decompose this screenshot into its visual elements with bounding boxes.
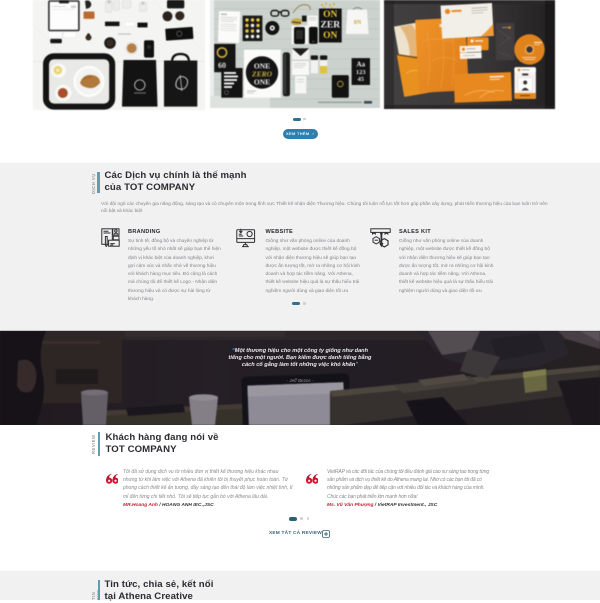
svg-text:ONE: ONE (254, 78, 270, 87)
svg-text:123: 123 (356, 69, 367, 76)
svg-text:ON: ON (323, 31, 337, 41)
svg-text:ON: ON (323, 10, 337, 20)
svg-text:ZER: ZER (321, 21, 341, 31)
svg-text:0N: 0N (354, 20, 362, 26)
svg-text:Aa: Aa (357, 61, 366, 69)
svg-text:45: 45 (358, 76, 365, 83)
